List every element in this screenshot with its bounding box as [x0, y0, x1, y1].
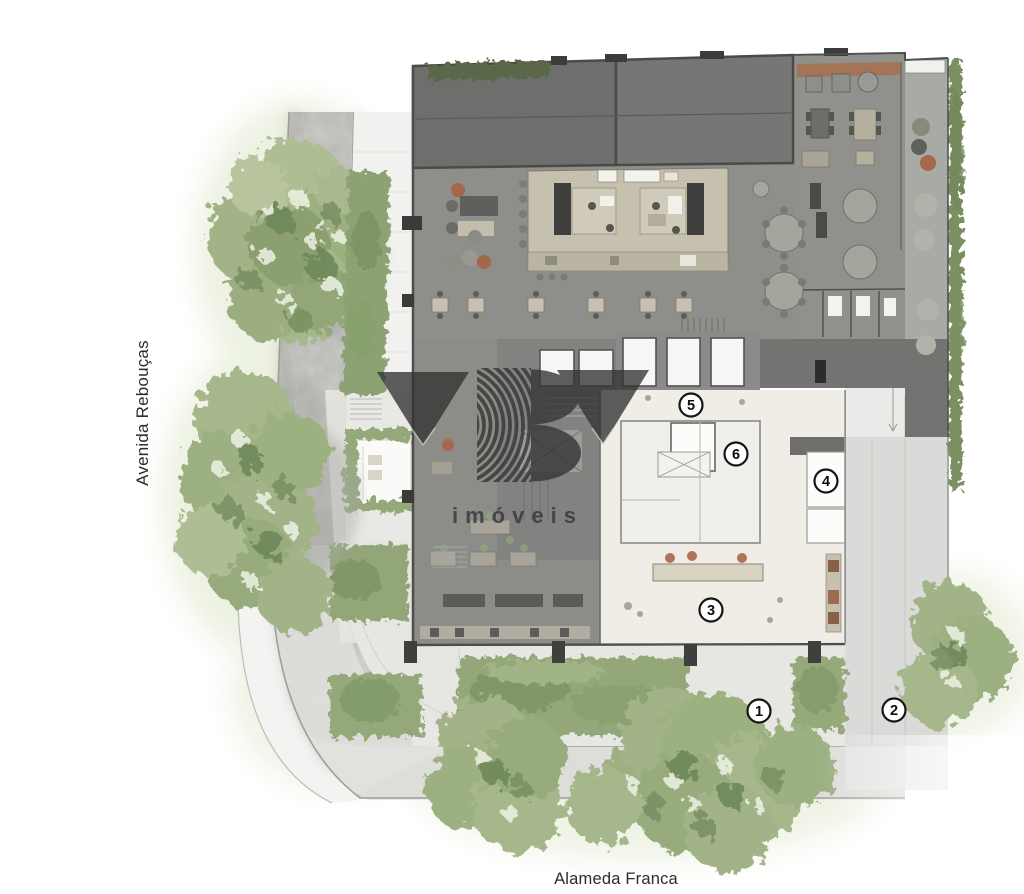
svg-text:6: 6	[732, 447, 740, 463]
svg-text:1: 1	[755, 704, 763, 720]
svg-text:4: 4	[822, 474, 830, 490]
svg-text:3: 3	[707, 603, 715, 619]
svg-text:5: 5	[687, 398, 695, 414]
svg-text:2: 2	[890, 703, 898, 719]
svg-text:Avenida Rebouças: Avenida Rebouças	[133, 340, 152, 486]
svg-text:Alameda Franca: Alameda Franca	[554, 870, 678, 888]
svg-text:imóveis: imóveis	[452, 503, 583, 528]
